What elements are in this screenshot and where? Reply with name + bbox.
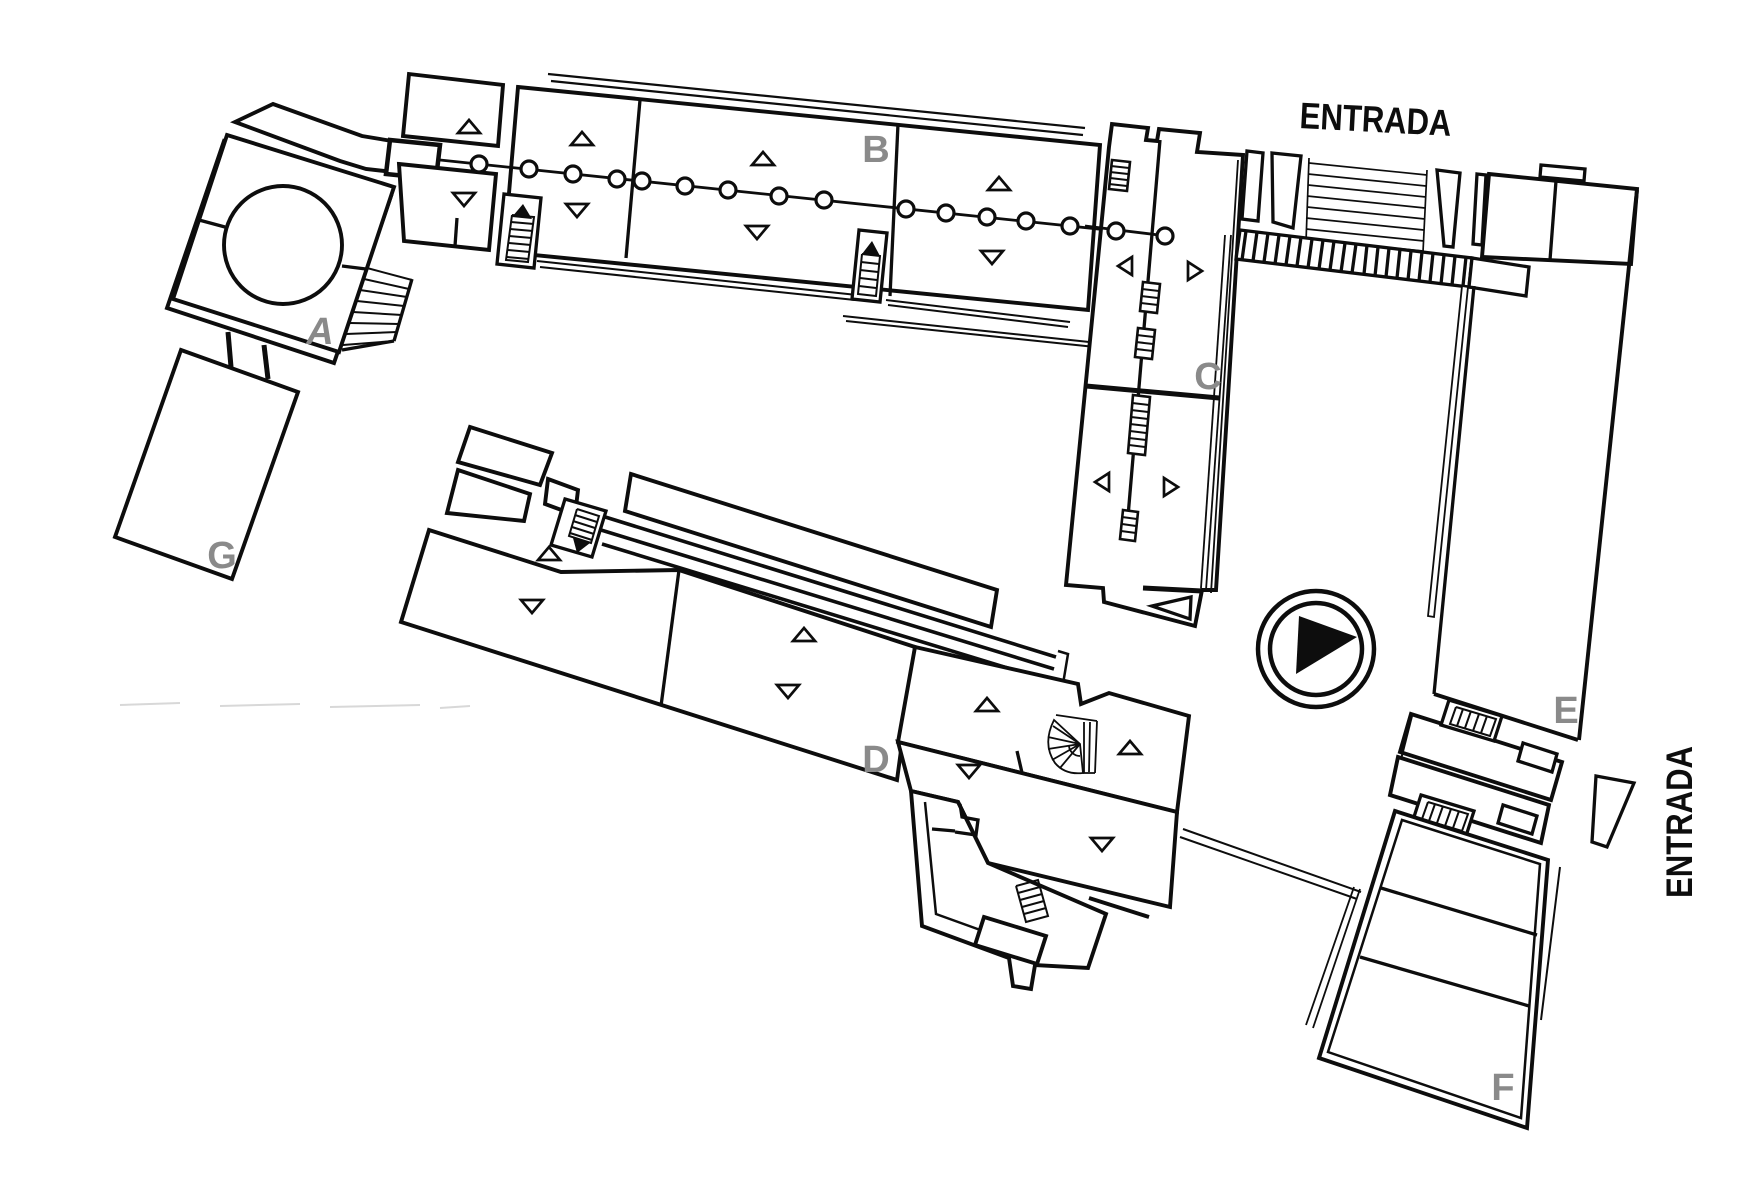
svg-text:ENTRADA: ENTRADA xyxy=(1299,96,1453,145)
svg-text:D: D xyxy=(862,739,889,781)
svg-text:ENTRADA: ENTRADA xyxy=(1660,746,1701,898)
svg-text:F: F xyxy=(1491,1067,1514,1109)
svg-text:E: E xyxy=(1553,690,1578,732)
svg-text:B: B xyxy=(862,129,889,171)
svg-text:C: C xyxy=(1194,356,1221,398)
svg-text:G: G xyxy=(207,535,237,577)
svg-text:A: A xyxy=(305,311,333,353)
